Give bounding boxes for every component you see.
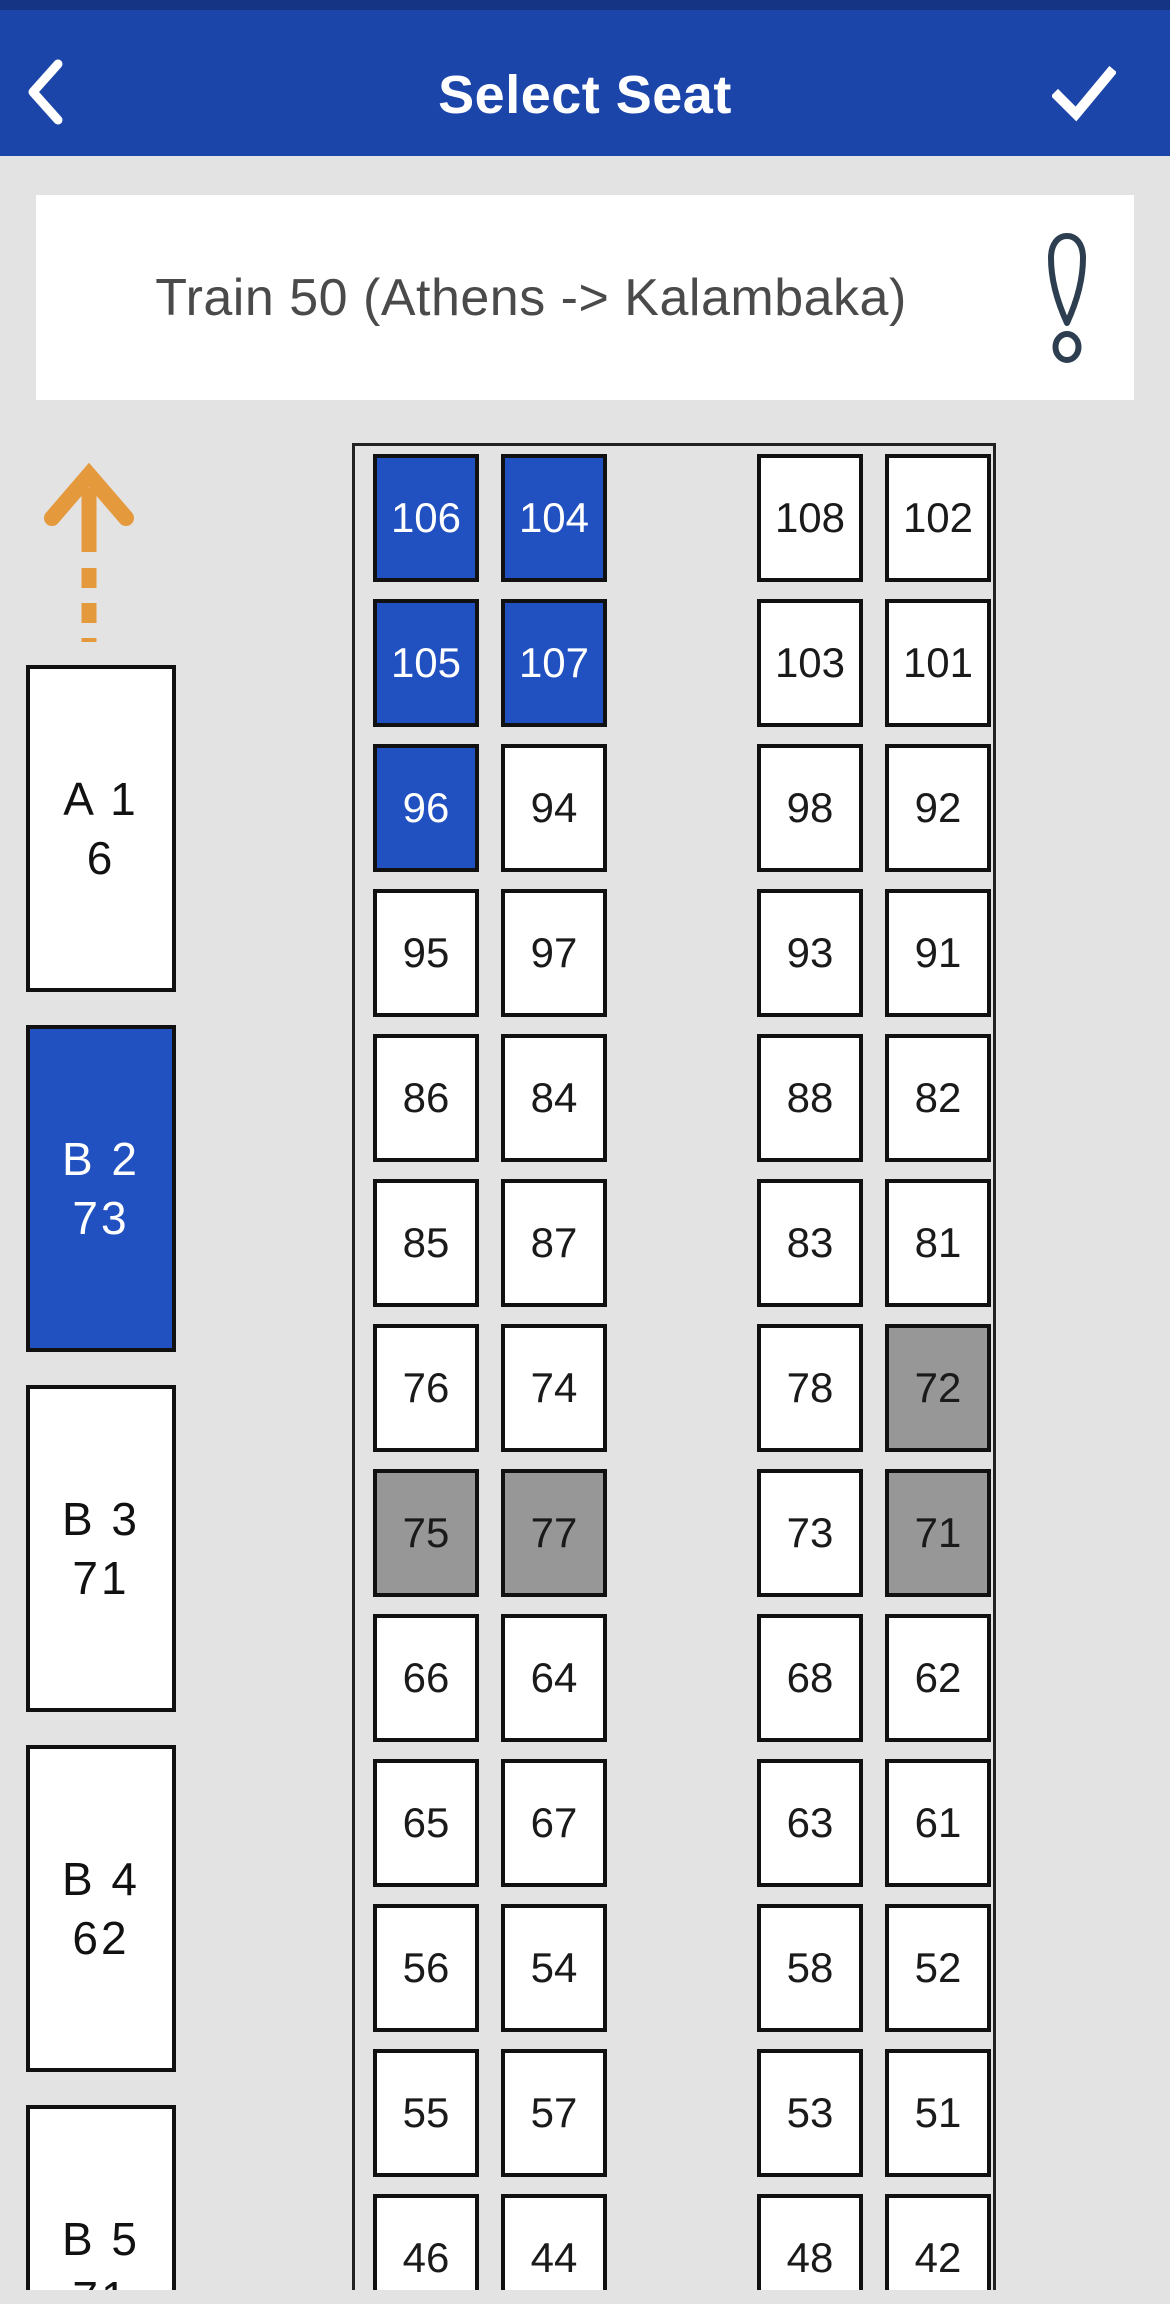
seat-48[interactable]: 48 <box>757 2194 863 2290</box>
seat-77[interactable]: 77 <box>501 1469 607 1597</box>
seat-108[interactable]: 108 <box>757 454 863 582</box>
carriage-A1[interactable]: A 16 <box>26 665 176 992</box>
seat-61[interactable]: 61 <box>885 1759 991 1887</box>
seat-44[interactable]: 44 <box>501 2194 607 2290</box>
seat-57[interactable]: 57 <box>501 2049 607 2177</box>
seat-56[interactable]: 56 <box>373 1904 479 2032</box>
seat-51[interactable]: 51 <box>885 2049 991 2177</box>
seat-95[interactable]: 95 <box>373 889 479 1017</box>
seat-101[interactable]: 101 <box>885 599 991 727</box>
seat-97[interactable]: 97 <box>501 889 607 1017</box>
seat-98[interactable]: 98 <box>757 744 863 872</box>
seat-42[interactable]: 42 <box>885 2194 991 2290</box>
seat-63[interactable]: 63 <box>757 1759 863 1887</box>
seat-84[interactable]: 84 <box>501 1034 607 1162</box>
seat-65[interactable]: 65 <box>373 1759 479 1887</box>
carriage-B2[interactable]: B 273 <box>26 1025 176 1352</box>
seat-86[interactable]: 86 <box>373 1034 479 1162</box>
seat-93[interactable]: 93 <box>757 889 863 1017</box>
seat-map: 1061041081021051071031019694989295979391… <box>352 443 996 2290</box>
statusbar-shade <box>0 0 1170 10</box>
seat-102[interactable]: 102 <box>885 454 991 582</box>
exclamation-icon <box>1046 231 1088 365</box>
seat-55[interactable]: 55 <box>373 2049 479 2177</box>
carriage-free-seats: 71 <box>72 1549 129 1608</box>
seat-104[interactable]: 104 <box>501 454 607 582</box>
seat-71[interactable]: 71 <box>885 1469 991 1597</box>
carriage-free-seats: 71 <box>72 2269 129 2291</box>
seat-76[interactable]: 76 <box>373 1324 479 1452</box>
seat-81[interactable]: 81 <box>885 1179 991 1307</box>
seat-53[interactable]: 53 <box>757 2049 863 2177</box>
seat-96[interactable]: 96 <box>373 744 479 872</box>
header-bar: Select Seat <box>0 0 1170 156</box>
carriage-free-seats: 6 <box>87 829 116 888</box>
seat-78[interactable]: 78 <box>757 1324 863 1452</box>
seat-selection-screen: A 16B 273B 371B 462B 571 106104108102105… <box>0 0 1170 2304</box>
seat-52[interactable]: 52 <box>885 1904 991 2032</box>
confirm-check-icon[interactable] <box>1052 66 1116 122</box>
seat-107[interactable]: 107 <box>501 599 607 727</box>
seat-62[interactable]: 62 <box>885 1614 991 1742</box>
carriage-name: B 3 <box>62 1490 140 1549</box>
carriage-free-seats: 73 <box>72 1189 129 1248</box>
seat-85[interactable]: 85 <box>373 1179 479 1307</box>
seat-73[interactable]: 73 <box>757 1469 863 1597</box>
seat-67[interactable]: 67 <box>501 1759 607 1887</box>
seat-54[interactable]: 54 <box>501 1904 607 2032</box>
carriage-B3[interactable]: B 371 <box>26 1385 176 1712</box>
seat-46[interactable]: 46 <box>373 2194 479 2290</box>
seat-68[interactable]: 68 <box>757 1614 863 1742</box>
carriage-name: B 4 <box>62 1850 140 1909</box>
seat-105[interactable]: 105 <box>373 599 479 727</box>
seat-92[interactable]: 92 <box>885 744 991 872</box>
carriage-B5[interactable]: B 571 <box>26 2105 176 2290</box>
page-title: Select Seat <box>0 64 1170 126</box>
carriage-B4[interactable]: B 462 <box>26 1745 176 2072</box>
seat-72[interactable]: 72 <box>885 1324 991 1452</box>
seat-88[interactable]: 88 <box>757 1034 863 1162</box>
seat-83[interactable]: 83 <box>757 1179 863 1307</box>
seat-64[interactable]: 64 <box>501 1614 607 1742</box>
seat-66[interactable]: 66 <box>373 1614 479 1742</box>
seat-94[interactable]: 94 <box>501 744 607 872</box>
seat-91[interactable]: 91 <box>885 889 991 1017</box>
trip-title: Train 50 (Athens -> Kalambaka) <box>36 268 1026 328</box>
trip-info-card: Train 50 (Athens -> Kalambaka) <box>36 195 1134 400</box>
carriage-name: A 1 <box>63 770 139 829</box>
carriage-name: B 5 <box>62 2210 140 2269</box>
carriage-name: B 2 <box>62 1130 140 1189</box>
seat-75[interactable]: 75 <box>373 1469 479 1597</box>
carriage-free-seats: 62 <box>72 1909 129 1968</box>
seat-106[interactable]: 106 <box>373 454 479 582</box>
seat-74[interactable]: 74 <box>501 1324 607 1452</box>
seat-82[interactable]: 82 <box>885 1034 991 1162</box>
seat-58[interactable]: 58 <box>757 1904 863 2032</box>
seat-103[interactable]: 103 <box>757 599 863 727</box>
seat-87[interactable]: 87 <box>501 1179 607 1307</box>
